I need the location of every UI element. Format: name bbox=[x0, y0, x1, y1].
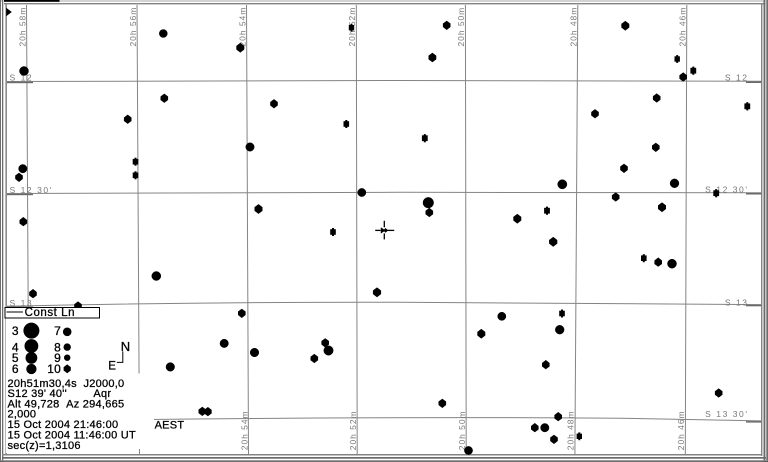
svg-text:20h 46m: 20h 46m bbox=[676, 410, 686, 450]
svg-text:20h 48m: 20h 48m bbox=[566, 410, 576, 450]
svg-text:3: 3 bbox=[12, 324, 19, 338]
svg-text:20h 54m: 20h 54m bbox=[237, 7, 247, 47]
svg-text:AEST: AEST bbox=[155, 420, 185, 432]
svg-text:20h 46m: 20h 46m bbox=[678, 7, 688, 47]
svg-text:S 13: S 13 bbox=[725, 298, 749, 308]
svg-text:10: 10 bbox=[47, 362, 61, 376]
svg-text:20h 50m: 20h 50m bbox=[457, 410, 467, 450]
svg-text:20h 50m: 20h 50m bbox=[456, 7, 466, 47]
svg-text:S 12: S 12 bbox=[725, 72, 749, 82]
svg-text:20h 56m: 20h 56m bbox=[128, 7, 138, 47]
svg-text:20h 52m: 20h 52m bbox=[348, 410, 358, 450]
svg-text:N: N bbox=[121, 339, 130, 354]
svg-text:6: 6 bbox=[12, 362, 19, 376]
svg-text:E: E bbox=[108, 361, 116, 373]
svg-text:20h 54m: 20h 54m bbox=[239, 410, 249, 450]
svg-text:Const Ln: Const Ln bbox=[25, 307, 75, 319]
svg-text:20h 58m: 20h 58m bbox=[17, 7, 27, 47]
svg-text:20h 48m: 20h 48m bbox=[569, 7, 579, 47]
svg-text:7: 7 bbox=[54, 324, 61, 338]
svg-text:S 13 30': S 13 30' bbox=[705, 409, 748, 419]
svg-text:sec(z)=1,3106: sec(z)=1,3106 bbox=[8, 440, 81, 452]
svg-text:S 12 30': S 12 30' bbox=[705, 185, 748, 195]
svg-text:S 12 30': S 12 30' bbox=[10, 185, 53, 195]
